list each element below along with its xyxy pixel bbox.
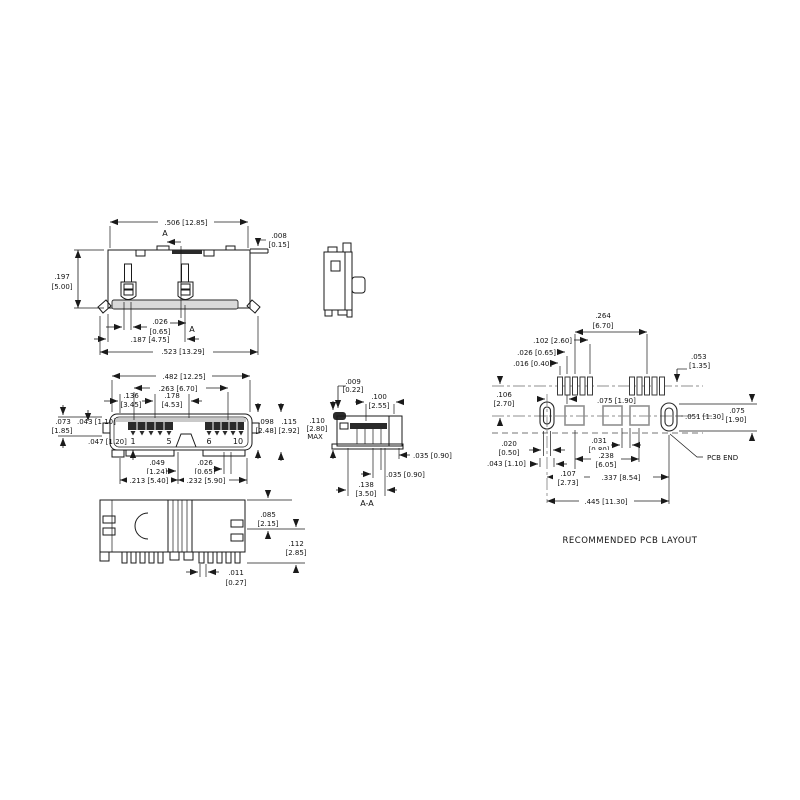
dim-height-mm: [5.00] — [51, 283, 72, 291]
dim-pcb-043: .043 [1.10] — [487, 460, 526, 468]
pcb-top-pads-left — [558, 377, 593, 395]
dim-front-047: .047 [1.20] — [88, 438, 127, 446]
dim-front-043: .043 [1.10] — [77, 418, 116, 426]
dim-sec-009-in: .009 — [345, 378, 361, 386]
dim-bot-112-mm: [2.85] — [285, 549, 306, 557]
dim-sec-138-mm: [3.50] — [355, 490, 376, 498]
dim-pcb-445: .445 [11.30] — [584, 498, 628, 506]
dim-pcb-075-top: .075 [1.90] — [597, 397, 636, 405]
dim-front-026-in: .026 — [197, 459, 213, 467]
dim-bot-112-in: .112 — [288, 540, 304, 548]
dim-pcb-107-mm: [2.73] — [557, 479, 578, 487]
pin-label-1: 1 — [130, 437, 135, 446]
section-marker-a-top: A — [162, 229, 168, 238]
dim-pcb-102: .102 [2.60] — [533, 337, 572, 345]
section-label: A-A — [360, 499, 374, 508]
pin-label-5: 5 — [166, 437, 171, 446]
dim-pcb-075r-mm: [1.90] — [725, 416, 746, 424]
pin-label-6: 6 — [206, 437, 211, 446]
dim-lip-in: .008 — [271, 232, 287, 240]
dim-front-115-in: .115 — [281, 418, 297, 426]
dim-pcb-016: .016 [0.40] — [513, 360, 552, 368]
dim-top-width: .506 [12.85] — [164, 219, 208, 227]
dim-sec-110-in: .110 — [309, 417, 325, 425]
dim-pcb-264-in: .264 — [595, 312, 611, 320]
dim-pcb-264-mm: [6.70] — [592, 322, 613, 330]
dim-front-136-in: .136 — [123, 392, 139, 400]
dim-sec-009-mm: [0.22] — [342, 386, 363, 394]
front-view-top-strip — [116, 418, 246, 422]
dim-front-049-in: .049 — [149, 459, 165, 467]
dim-pcb-337: .337 [8.54] — [602, 474, 641, 482]
dim-pcb-106-mm: [2.70] — [493, 400, 514, 408]
dim-front-178-mm: [4.53] — [161, 401, 182, 409]
dim-bot-011-mm: [0.27] — [225, 579, 246, 587]
dim-front-136-mm: [3.45] — [120, 401, 141, 409]
dim-pcb-031-in: .031 — [591, 437, 607, 445]
dim-post-mm: [0.65] — [149, 328, 170, 336]
dim-pcb-106-in: .106 — [496, 391, 512, 399]
dim-pcb-051: .051 [1.30] — [685, 413, 724, 421]
dim-pcb-238-in: .238 — [598, 452, 614, 460]
dim-pcb-053-mm: [1.35] — [689, 362, 710, 370]
dim-front-178-in: .178 — [164, 392, 180, 400]
dim-top-overall: .523 [13.29] — [161, 348, 205, 356]
dim-sec-110-max: MAX — [307, 433, 323, 441]
dim-height-in: .197 — [54, 273, 70, 281]
top-view-shield-seam — [172, 250, 202, 254]
dim-pcb-053-in: .053 — [691, 353, 707, 361]
technical-drawing: .506 [12.85] A .008 [0.15] .197 [5.00] .… — [0, 0, 800, 800]
dim-sec-035-side: .035 [0.90] — [413, 452, 452, 460]
dim-front-073-mm: [1.85] — [51, 427, 72, 435]
dim-front-073-in: .073 — [55, 418, 71, 426]
dim-bot-085-mm: [2.15] — [257, 520, 278, 528]
dim-sec-110-mm: [2.80] — [306, 425, 327, 433]
dim-front-115-mm: [2.92] — [278, 427, 299, 435]
dim-pcb-020-in: .020 — [501, 440, 517, 448]
dim-sec-138-in: .138 — [358, 481, 374, 489]
dim-pcb-107-in: .107 — [560, 470, 576, 478]
dim-front-232: .232 [5.90] — [187, 477, 226, 485]
pcb-end-label: PCB END — [707, 454, 738, 462]
dim-sec-100-mm: [2.55] — [368, 402, 389, 410]
pin-label-10: 10 — [233, 437, 243, 446]
section-marker-a-bottom: A — [189, 325, 195, 334]
dim-pcb-075r-in: .075 — [729, 407, 745, 415]
dim-front-098-mm: [2.48] — [255, 427, 276, 435]
dim-pcb-238-mm: [6.05] — [595, 461, 616, 469]
dim-front-shell: .482 [12.25] — [162, 373, 206, 381]
dim-front-098-in: .098 — [258, 418, 274, 426]
dim-pcb-026: .026 [0.65] — [517, 349, 556, 357]
dim-post-in: .026 — [152, 318, 168, 326]
dim-pcb-020-mm: [0.50] — [498, 449, 519, 457]
dim-bot-011-in: .011 — [228, 569, 244, 577]
dim-bot-085-in: .085 — [260, 511, 276, 519]
pcb-top-pads-right — [630, 377, 665, 395]
dim-post-offset: .187 [4.75] — [131, 336, 170, 344]
pcb-layout-title: RECOMMENDED PCB LAYOUT — [563, 536, 698, 546]
dim-sec-035-bottom: .035 [0.90] — [386, 471, 425, 479]
dim-sec-100-in: .100 — [371, 393, 387, 401]
dim-front-213: .213 [5.40] — [130, 477, 169, 485]
dim-lip-mm: [0.15] — [268, 241, 289, 249]
